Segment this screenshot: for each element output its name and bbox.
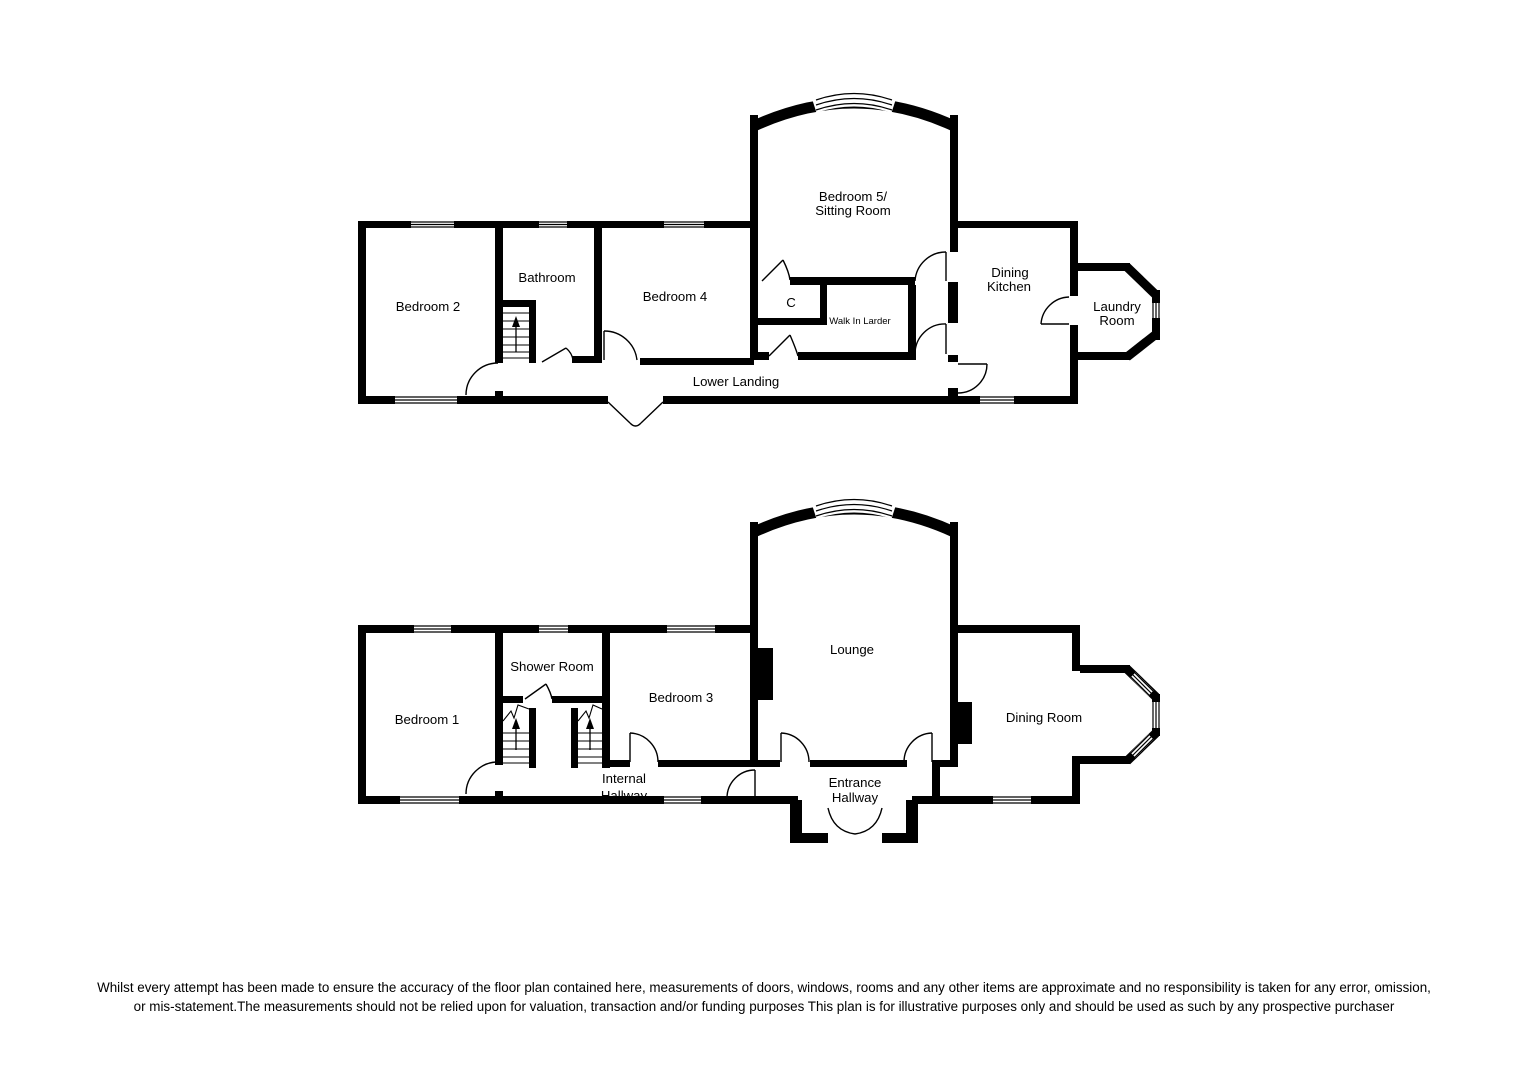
upper-floor-plan: Bedroom 2 Bathroom Bedroom 4 Bedroom 5/ … [358,94,1161,427]
floorplan-canvas: Bedroom 2 Bathroom Bedroom 4 Bedroom 5/ … [0,0,1528,1080]
ground-floor-plan: Bedroom 1 Shower Room Bedroom 3 Lounge D… [358,500,1161,844]
disclaimer-text: Whilst every attempt has been made to en… [0,979,1528,1016]
room-label-bedroom-4: Bedroom 4 [643,289,708,304]
room-label-bathroom: Bathroom [518,270,575,285]
upper-walls [358,94,1160,405]
room-label-entrance-hallway-line2: Hallway [832,790,879,805]
room-label-entrance-hallway-line1: Entrance [829,775,882,790]
upper-stairs [503,313,529,358]
room-label-dining-room: Dining Room [1006,710,1082,725]
ground-stairs [503,705,602,763]
room-label-shower-room: Shower Room [510,659,594,674]
room-label-closet: C [786,295,796,310]
room-label-bedroom-5-line1: Bedroom 5/ [819,189,888,204]
room-label-dining-kitchen-line1: Dining [991,265,1028,280]
room-label-internal-hallway-line1: Internal [602,771,646,786]
room-label-bedroom-1: Bedroom 1 [395,712,460,727]
room-label-lounge: Lounge [830,642,874,657]
room-label-lower-landing: Lower Landing [693,374,780,389]
disclaimer-line-2: or mis-statement.The measurements should… [0,998,1528,1017]
room-label-bedroom-3: Bedroom 3 [649,690,714,705]
room-label-laundry-line1: Laundry [1093,299,1141,314]
room-label-dining-kitchen-line2: Kitchen [987,279,1031,294]
room-label-bedroom-5-line2: Sitting Room [815,203,891,218]
room-label-bedroom-2: Bedroom 2 [396,299,461,314]
ground-walls [358,500,1160,844]
room-label-walk-in-larder: Walk In Larder [829,316,890,327]
room-label-laundry-line2: Room [1099,313,1134,328]
disclaimer-line-1: Whilst every attempt has been made to en… [0,979,1528,998]
floorplan-page: Bedroom 2 Bathroom Bedroom 4 Bedroom 5/ … [0,0,1528,1080]
room-label-internal-hallway-line2: Hallway [601,788,648,803]
